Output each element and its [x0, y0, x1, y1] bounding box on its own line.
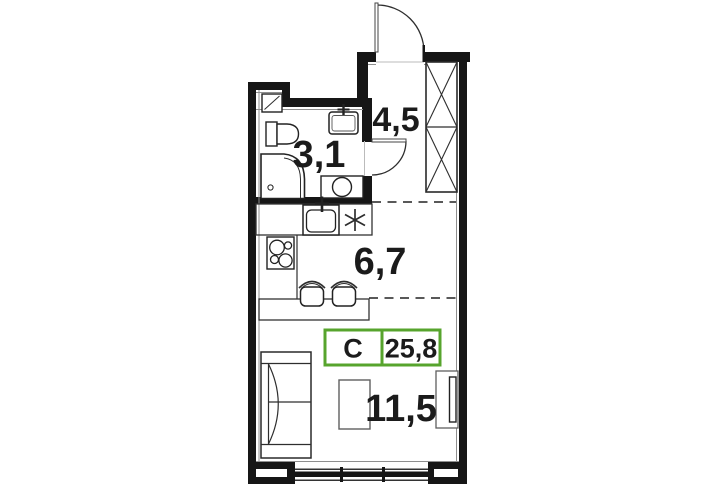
wardrobe-icon — [426, 62, 457, 192]
total-area-label: 25,8 — [385, 334, 438, 364]
kitchen-area-label: 6,7 — [354, 241, 407, 283]
tv-unit-icon — [436, 371, 458, 428]
wall-segment — [459, 52, 467, 484]
door-leaf — [372, 139, 406, 142]
stool-seat — [333, 287, 356, 306]
window-band — [295, 472, 428, 478]
washer-drum — [333, 178, 352, 197]
face-line — [259, 90, 260, 462]
wall-segment — [248, 82, 256, 484]
pier-cavity — [256, 469, 287, 477]
hall-area-label: 4,5 — [372, 101, 419, 139]
bathroom-door-icon — [372, 139, 406, 175]
appliance-spot-icon — [345, 209, 365, 231]
window-mullion — [340, 467, 343, 482]
face-line — [256, 461, 459, 462]
entry-door-icon — [375, 3, 425, 62]
sofa-icon — [261, 352, 311, 458]
water-heater-icon — [262, 94, 282, 112]
door-swing-arc — [372, 141, 406, 175]
floor-plan-drawing: 3,1 4,5 6,7 11,5 C 25,8 — [0, 0, 725, 500]
living-area-label: 11,5 — [365, 388, 437, 430]
washbasin-icon — [329, 104, 358, 134]
window-line — [295, 469, 428, 471]
cooktop-icon — [267, 237, 294, 269]
bar-stool-icon — [299, 282, 325, 307]
window-line — [295, 480, 428, 482]
window-mullion — [382, 467, 385, 482]
door-leaf — [375, 3, 378, 52]
bar-stool-icon — [331, 282, 357, 307]
washing-machine-icon — [321, 176, 363, 198]
tv-screen — [450, 377, 457, 422]
toilet-tank — [266, 122, 277, 146]
door-jamb — [423, 45, 426, 62]
apartment-type-label: C — [343, 334, 363, 364]
stool-seat — [301, 287, 324, 306]
apartment-badge: C 25,8 — [325, 330, 440, 365]
face-line — [368, 64, 376, 65]
floor-plan: 3,1 4,5 6,7 11,5 C 25,8 — [0, 0, 725, 500]
face-line — [256, 92, 282, 93]
wall-segment — [362, 98, 372, 142]
bathroom-area-label: 3,1 — [293, 134, 346, 176]
face-line — [364, 141, 365, 176]
pier-cavity — [434, 469, 458, 477]
face-line — [376, 62, 424, 63]
window-icon — [295, 467, 428, 482]
shower-drain — [268, 185, 273, 190]
wall-segment — [357, 52, 376, 62]
door-swing-arc — [377, 5, 424, 52]
